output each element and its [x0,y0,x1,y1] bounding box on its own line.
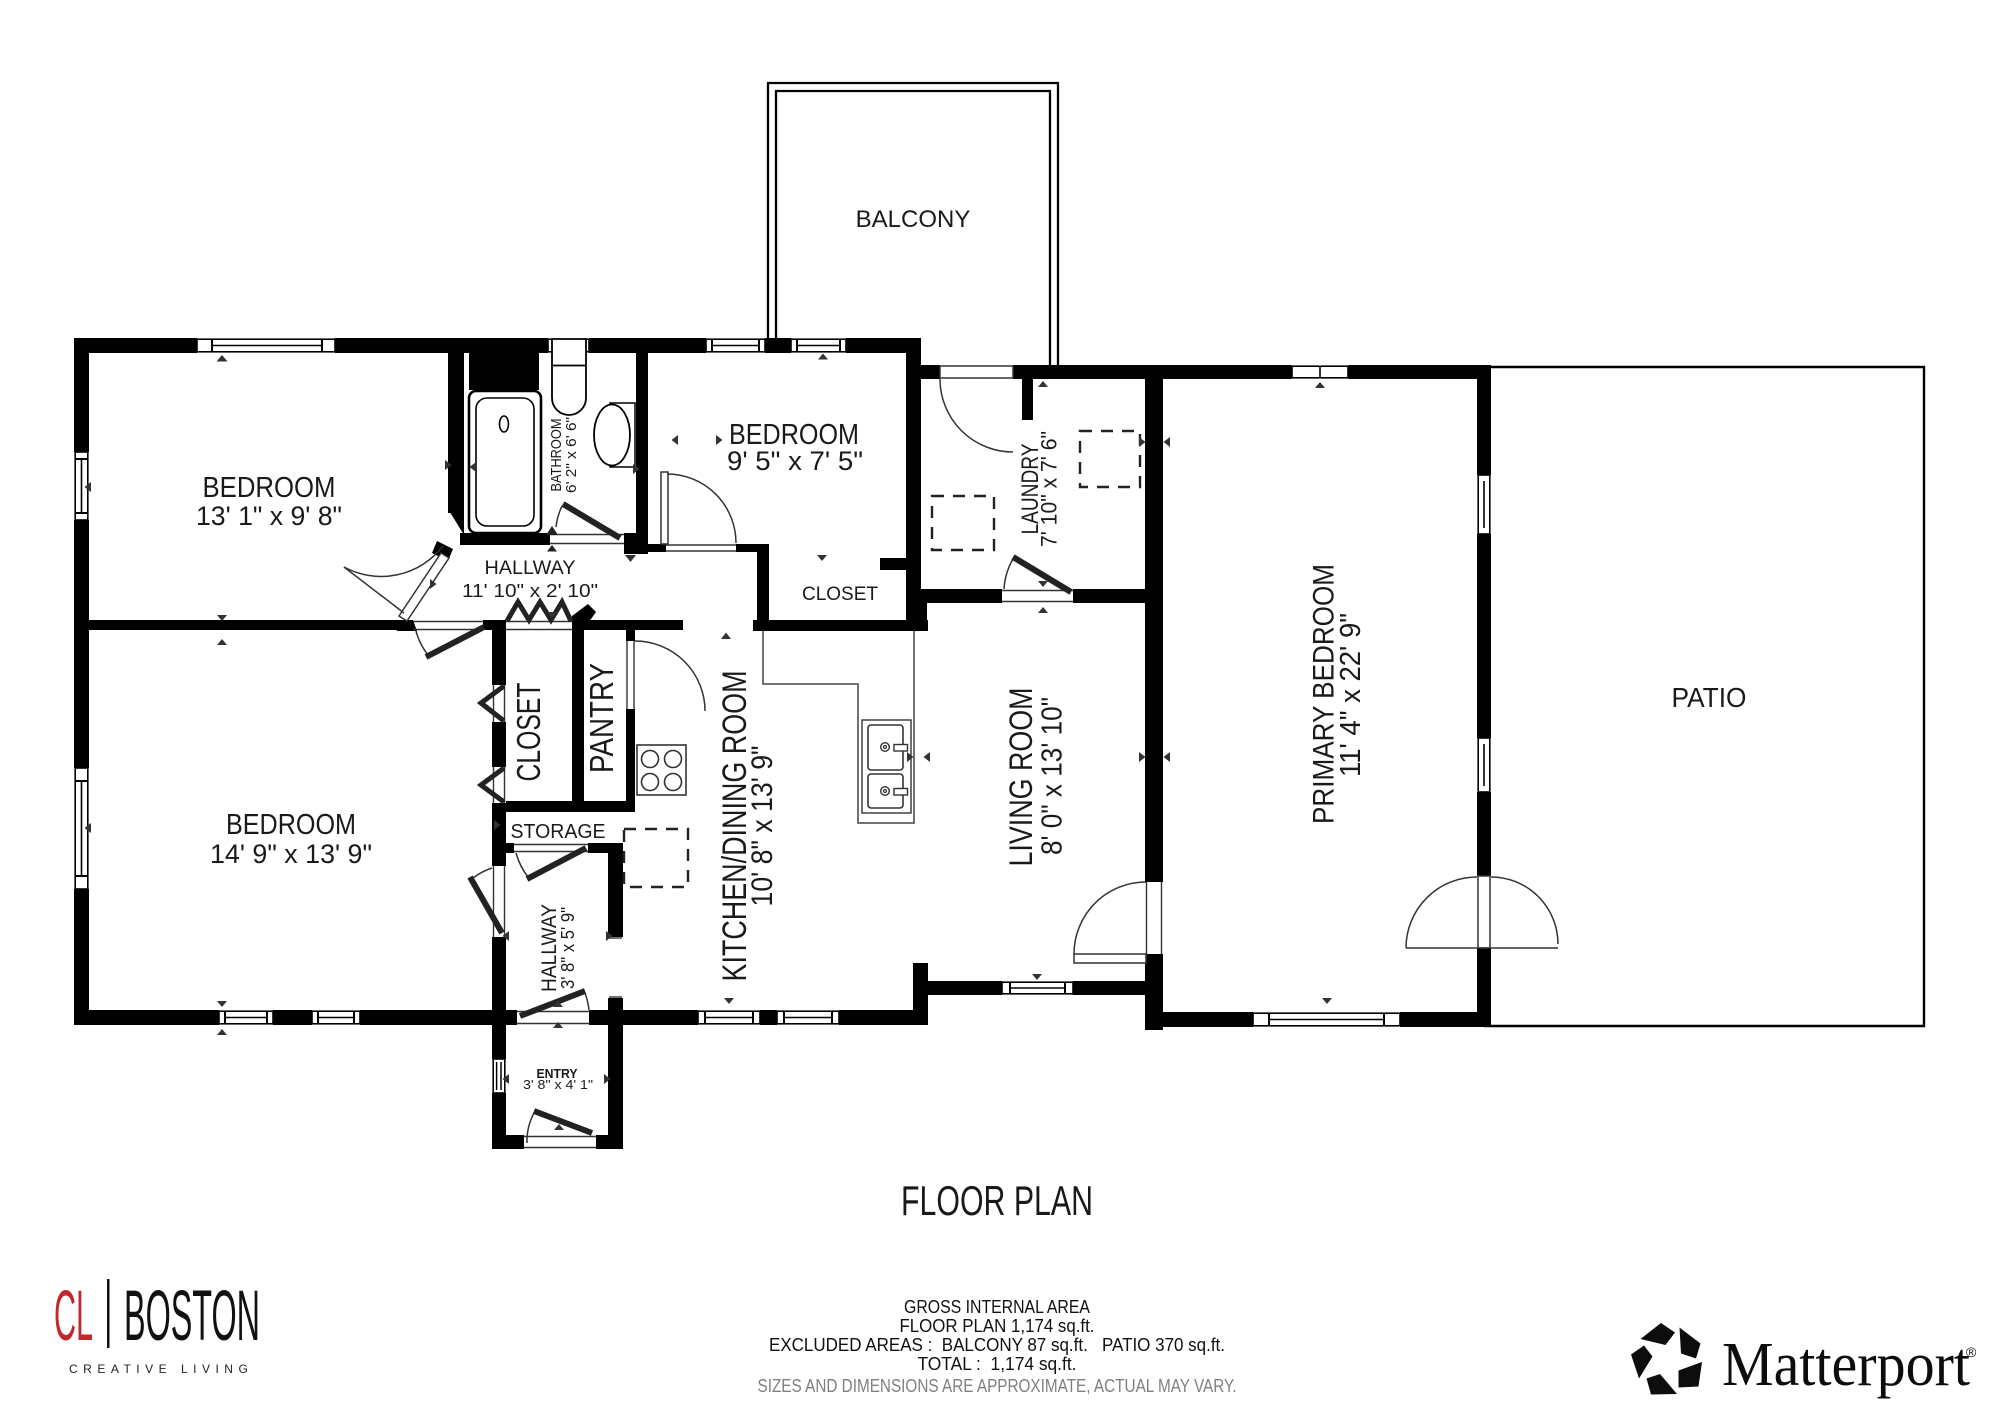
svg-text:14' 9" x 13' 9": 14' 9" x 13' 9" [210,839,372,869]
svg-text:®: ® [1966,1344,1977,1360]
svg-text:Matterport: Matterport [1722,1331,1970,1399]
svg-text:13' 1" x 9' 8": 13' 1" x 9' 8" [196,501,342,531]
svg-text:HALLWAY: HALLWAY [485,558,576,579]
svg-text:3' 8" x 4' 1": 3' 8" x 4' 1" [523,1077,593,1092]
svg-text:EXCLUDED AREAS : BALCONY 87 s: EXCLUDED AREAS : BALCONY 87 sq.ft. PATIO… [769,1335,1225,1355]
svg-text:BOSTON: BOSTON [124,1277,260,1356]
svg-text:LIVING ROOM: LIVING ROOM [1003,688,1039,867]
svg-text:FLOOR PLAN: FLOOR PLAN [901,1177,1093,1224]
svg-text:CLOSET: CLOSET [802,584,878,605]
svg-text:TOTAL : 1,174 sq.ft.: TOTAL : 1,174 sq.ft. [918,1354,1077,1374]
svg-text:8' 0" x 13' 10": 8' 0" x 13' 10" [1037,697,1069,855]
svg-text:10' 8" x 13' 9": 10' 8" x 13' 9" [746,746,779,907]
svg-text:11' 4" x 22' 9": 11' 4" x 22' 9" [1335,613,1367,777]
svg-text:BEDROOM: BEDROOM [203,472,336,504]
svg-text:SIZES AND DIMENSIONS ARE APPRO: SIZES AND DIMENSIONS ARE APPROXIMATE, AC… [758,1376,1237,1396]
svg-text:CLOSET: CLOSET [510,683,547,782]
svg-text:PANTRY: PANTRY [583,663,620,773]
svg-text:STORAGE: STORAGE [511,821,606,843]
svg-text:CREATIVE LIVING: CREATIVE LIVING [69,1362,253,1376]
svg-text:6' 2" x 6' 6": 6' 2" x 6' 6" [563,417,580,493]
svg-text:7' 10" x 7' 6": 7' 10" x 7' 6" [1037,431,1062,547]
svg-text:CL: CL [54,1277,93,1356]
svg-text:FLOOR PLAN 1,174 sq.ft.: FLOOR PLAN 1,174 sq.ft. [900,1316,1095,1336]
svg-text:3' 8" x 5' 9": 3' 8" x 5' 9" [557,907,578,989]
svg-text:11' 10" x 2' 10": 11' 10" x 2' 10" [462,580,598,601]
svg-text:BEDROOM: BEDROOM [226,809,356,841]
svg-text:PATIO: PATIO [1672,682,1747,713]
svg-text:BALCONY: BALCONY [856,206,971,233]
svg-text:9' 5" x 7' 5": 9' 5" x 7' 5" [727,446,863,476]
svg-text:GROSS INTERNAL AREA: GROSS INTERNAL AREA [904,1297,1090,1317]
